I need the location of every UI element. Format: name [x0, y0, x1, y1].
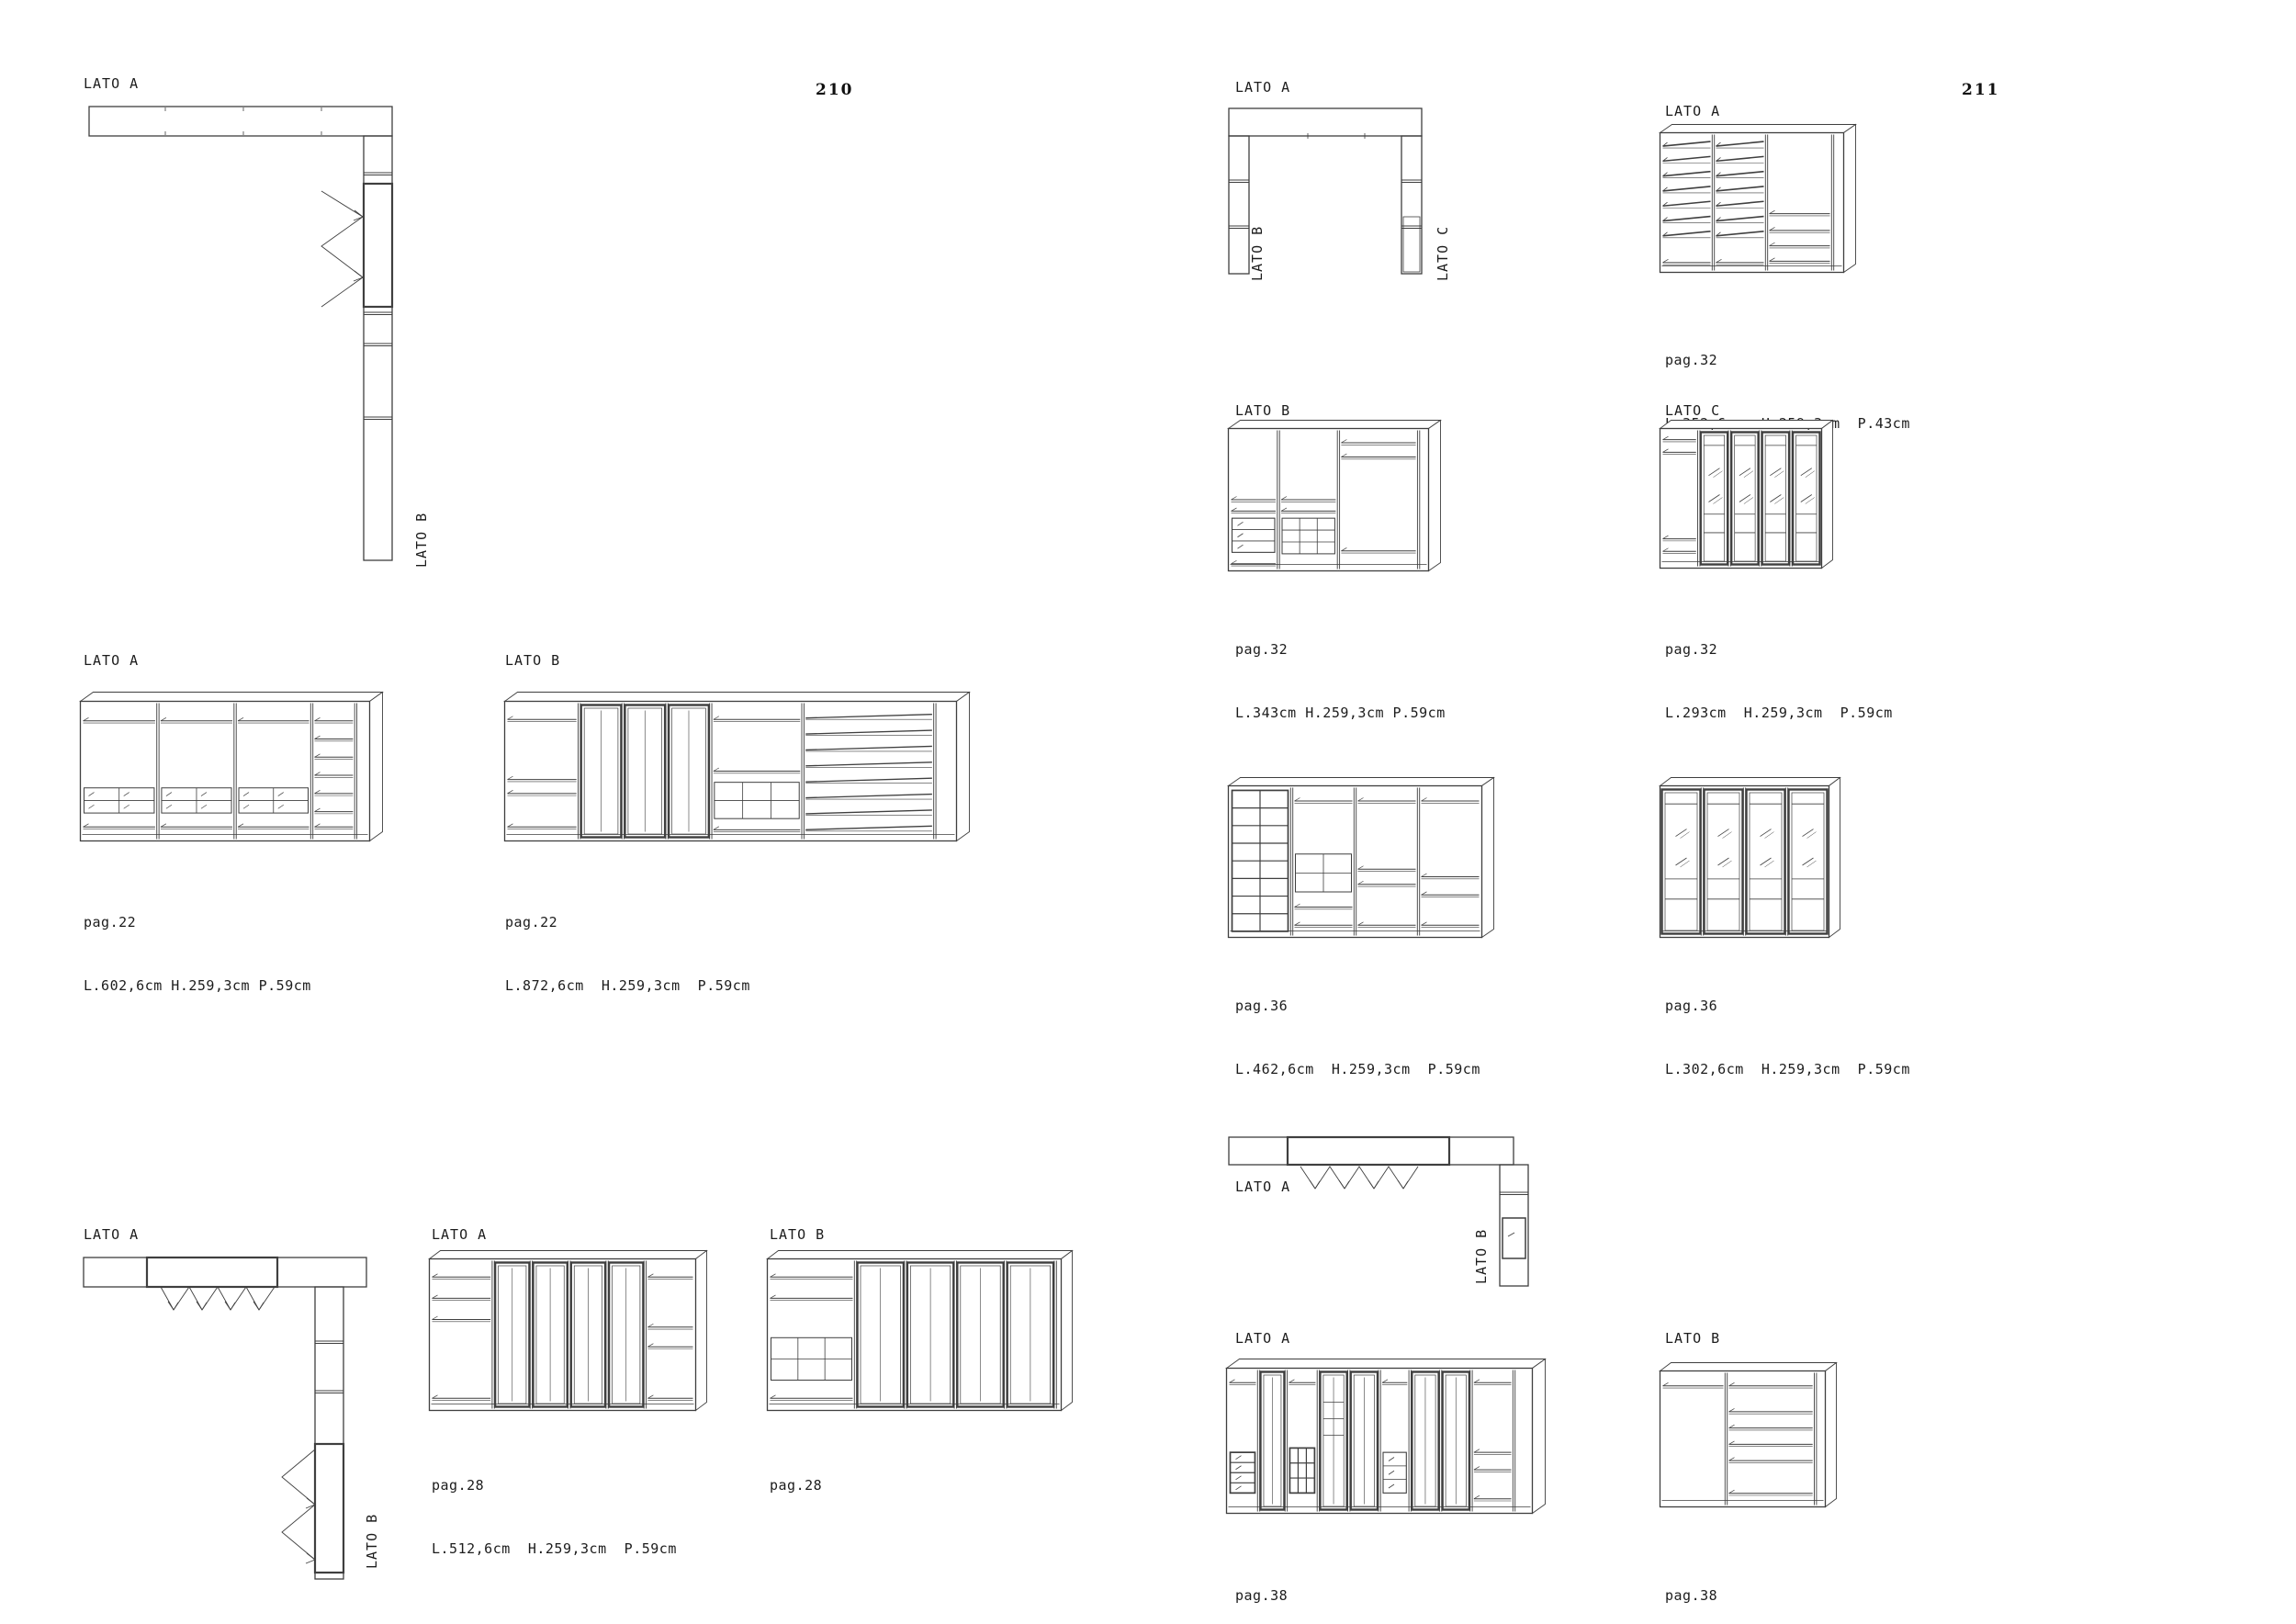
page-ref: pag.36 — [1235, 996, 1480, 1017]
wardrobe-pag28-b-caption: pag.28 — [770, 1433, 822, 1581]
plan-bottom-left-label: LATO A — [84, 1226, 139, 1243]
wardrobe-pag28-a-drawing — [428, 1249, 709, 1413]
page-ref: pag.32 — [1665, 350, 1910, 371]
wardrobe-pag22-b-drawing — [503, 691, 972, 843]
dimensions: L.462,6cm H.259,3cm P.59cm — [1235, 1059, 1480, 1080]
wardrobe-pag38-b-label: LATO B — [1665, 1330, 1720, 1347]
wardrobe-pag22-b-label: LATO B — [505, 652, 560, 669]
page-ref: pag.28 — [770, 1475, 822, 1496]
wardrobe-pag28-a-caption: pag.28 L.512,6cm H.259,3cm P.59cm — [432, 1433, 677, 1602]
wardrobe-pag32-b-caption: pag.32 L.343cm H.259,3cm P.59cm — [1235, 597, 1446, 766]
wardrobe-pag36-b-caption: pag.36 L.302,6cm H.259,3cm P.59cm — [1665, 953, 1910, 1122]
page-ref: pag.38 — [1235, 1585, 1480, 1607]
wardrobe-pag22-a-label: LATO A — [84, 652, 139, 669]
wardrobe-pag22-a-drawing — [79, 691, 385, 843]
dimensions: L.602,6cm H.259,3cm P.59cm — [84, 976, 311, 997]
plan-top-right-side-label-right: LATO C — [1435, 224, 1451, 281]
catalog-spread: 210 211 LATO A LATO B LATO A pag.22 L.60… — [0, 0, 2296, 1624]
plan-top-left-side-label: LATO B — [413, 513, 430, 568]
dimensions: L.872,6cm H.259,3cm P.59cm — [505, 976, 750, 997]
wardrobe-pag22-b-caption: pag.22 L.872,6cm H.259,3cm P.59cm — [505, 870, 750, 1039]
wardrobe-pag32-c-label: LATO C — [1665, 402, 1720, 419]
plan-bottom-right-label: LATO A — [1235, 1179, 1290, 1195]
wardrobe-pag38-b-drawing — [1659, 1361, 1839, 1509]
plan-bottom-right-side-label: LATO B — [1473, 1229, 1490, 1284]
dimensions: L.293cm H.259,3cm P.59cm — [1665, 703, 1893, 724]
wardrobe-pag22-a-caption: pag.22 L.602,6cm H.259,3cm P.59cm — [84, 870, 311, 1039]
wardrobe-pag28-a-label: LATO A — [432, 1226, 487, 1243]
plan-bottom-left-side-label: LATO B — [364, 1514, 380, 1569]
dimensions: L.302,6cm H.259,3cm P.59cm — [1665, 1059, 1910, 1080]
wardrobe-pag38-b-caption: pag.38 L.302,6cm H.259,3cm P.43cm — [1665, 1543, 1910, 1624]
wardrobe-pag38-a-drawing — [1225, 1358, 1548, 1516]
page-ref: pag.22 — [505, 912, 750, 933]
dimensions: L.343cm H.259,3cm P.59cm — [1235, 703, 1446, 724]
wardrobe-pag32-c-caption: pag.32 L.293cm H.259,3cm P.59cm — [1665, 597, 1893, 766]
wardrobe-pag32-a-label: LATO A — [1665, 103, 1720, 119]
wardrobe-pag36-a-caption: pag.36 L.462,6cm H.259,3cm P.59cm — [1235, 953, 1480, 1122]
wardrobe-pag32-c-drawing — [1659, 419, 1835, 570]
dimensions: L.512,6cm H.259,3cm P.59cm — [432, 1539, 677, 1560]
floor-plan-corner-bottom-right-drawing — [1227, 1133, 1544, 1299]
page-ref: pag.22 — [84, 912, 311, 933]
wardrobe-pag32-b-drawing — [1227, 419, 1443, 573]
wardrobe-pag28-b-drawing — [766, 1249, 1075, 1413]
page-ref: pag.32 — [1665, 639, 1893, 660]
folio-left: 210 — [816, 81, 854, 99]
wardrobe-pag32-b-label: LATO B — [1235, 402, 1290, 419]
wardrobe-pag36-b-drawing — [1659, 776, 1842, 940]
wardrobe-pag36-a-drawing — [1227, 776, 1496, 940]
page-ref: pag.36 — [1665, 996, 1910, 1017]
floor-plan-corner-bottom-left-drawing — [82, 1253, 449, 1602]
page-ref: pag.38 — [1665, 1585, 1910, 1607]
page-ref: pag.32 — [1235, 639, 1446, 660]
wardrobe-pag32-a-drawing — [1659, 123, 1858, 275]
plan-top-left-label: LATO A — [84, 75, 139, 92]
plan-top-right-label: LATO A — [1235, 79, 1290, 96]
floor-plan-corner-top-left-drawing — [87, 103, 455, 571]
plan-top-right-side-label-left: LATO B — [1249, 224, 1266, 281]
wardrobe-pag28-b-label: LATO B — [770, 1226, 825, 1243]
wardrobe-pag38-a-caption: pag.38 L.554,6cm H.259,3cm P.59cm — [1235, 1543, 1480, 1624]
wardrobe-pag38-a-label: LATO A — [1235, 1330, 1290, 1347]
page-ref: pag.28 — [432, 1475, 677, 1496]
folio-right: 211 — [1962, 81, 2000, 99]
